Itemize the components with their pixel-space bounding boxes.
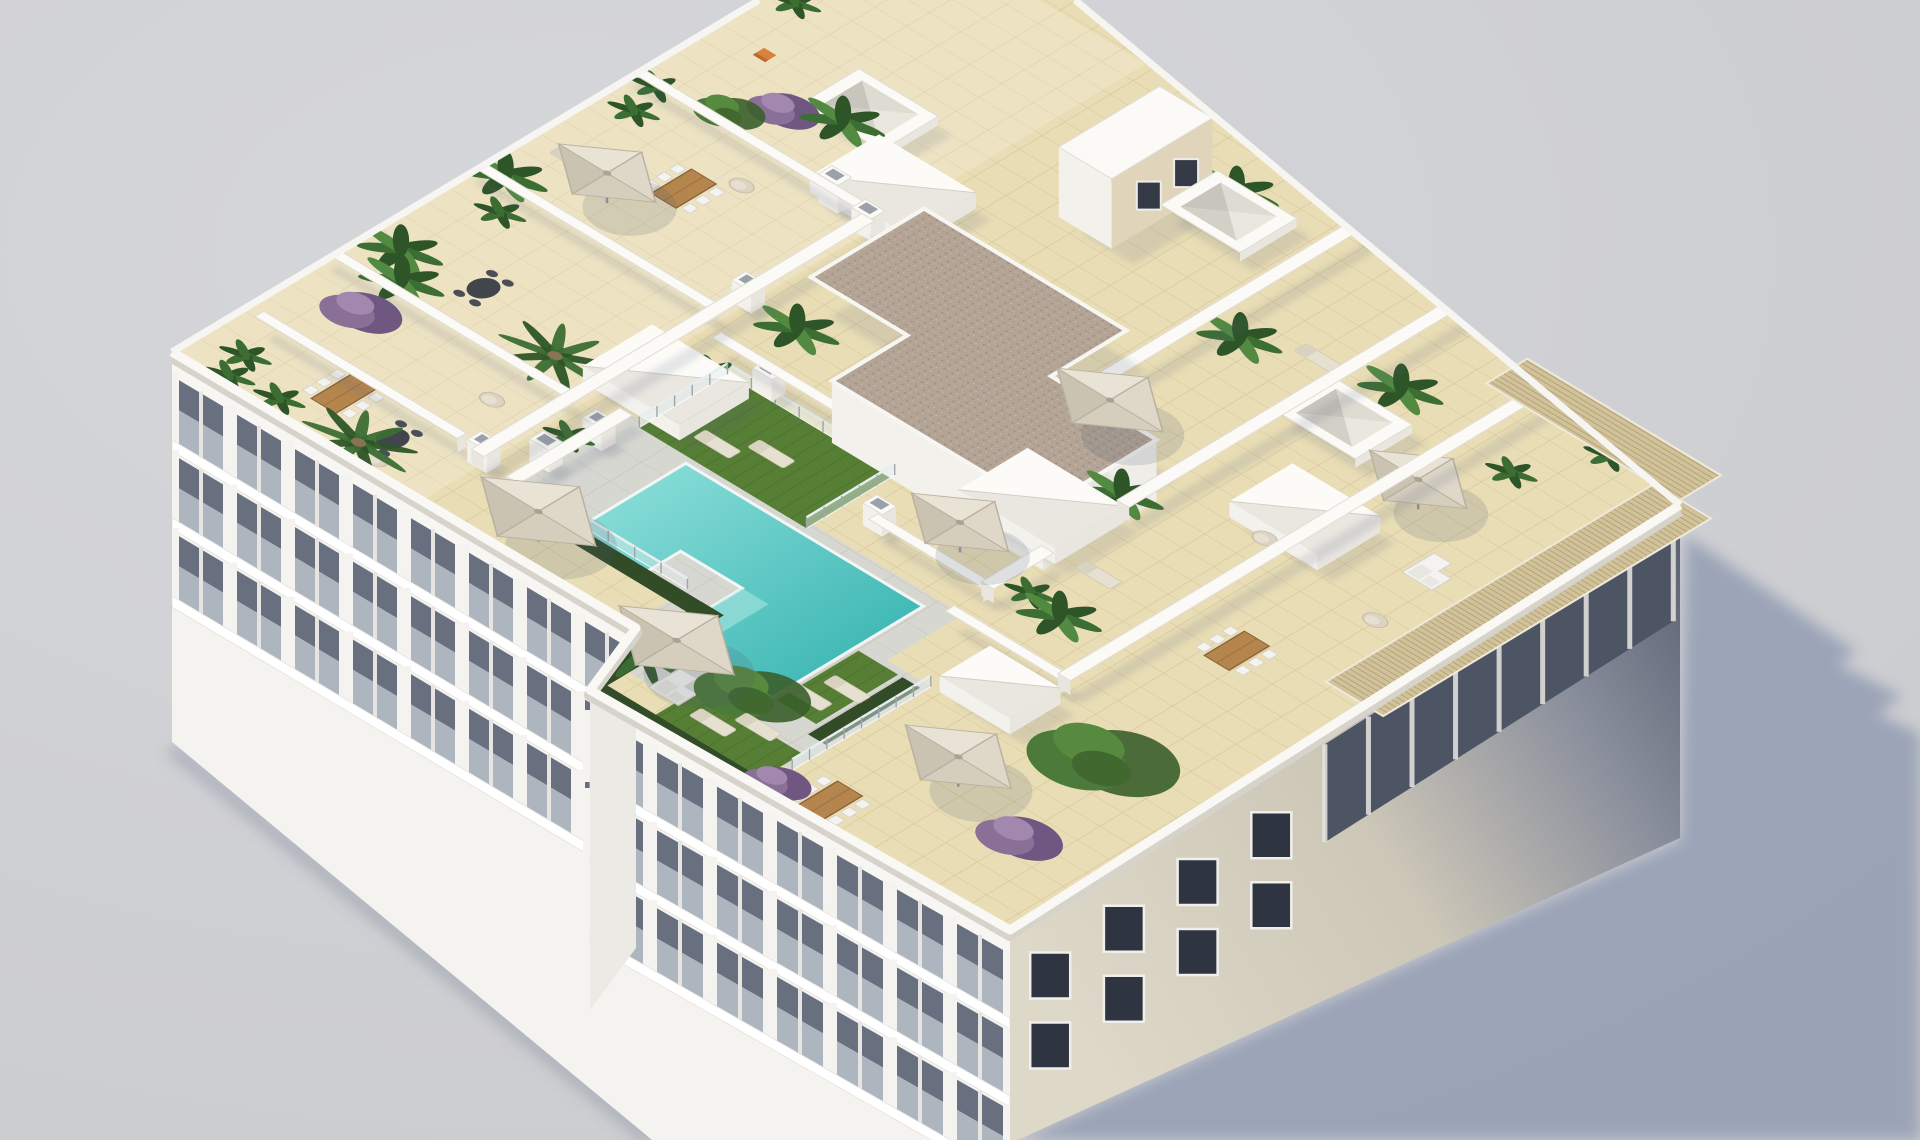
render-viewport: [0, 0, 1920, 1140]
architectural-render: [0, 0, 1920, 1140]
